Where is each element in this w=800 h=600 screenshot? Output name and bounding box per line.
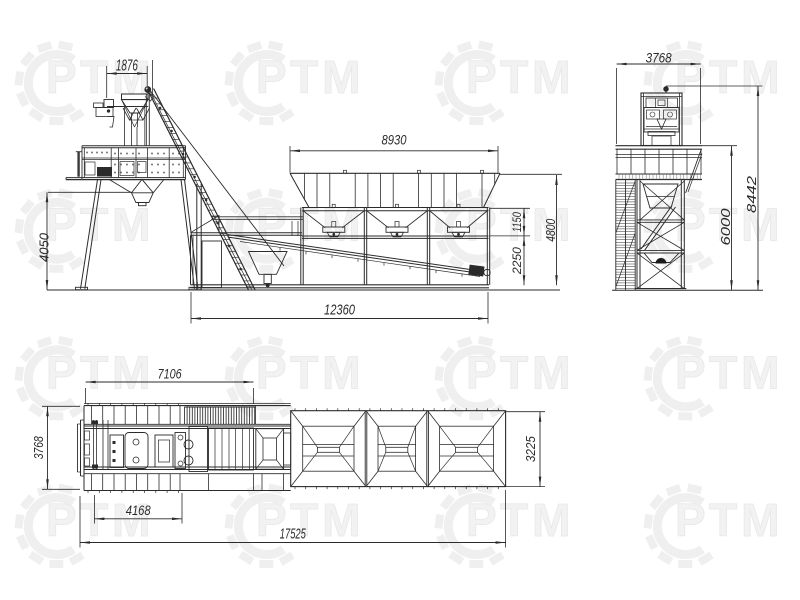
svg-text:8442: 8442: [744, 175, 759, 213]
svg-text:4168: 4168: [126, 502, 151, 518]
svg-text:2250: 2250: [510, 247, 524, 275]
svg-text:17525: 17525: [280, 526, 306, 543]
svg-text:РТМ: РТМ: [466, 494, 575, 546]
svg-text:7106: 7106: [158, 366, 182, 382]
svg-text:РТМ: РТМ: [46, 199, 155, 251]
svg-text:РТМ: РТМ: [675, 346, 784, 398]
svg-text:6000: 6000: [718, 208, 733, 246]
svg-text:РТМ: РТМ: [256, 494, 365, 546]
svg-text:РТМ: РТМ: [675, 51, 784, 103]
svg-text:РТМ: РТМ: [256, 51, 365, 103]
svg-text:РТМ: РТМ: [256, 346, 365, 398]
svg-text:РТМ: РТМ: [675, 494, 784, 546]
svg-text:8930: 8930: [382, 131, 407, 147]
svg-text:12360: 12360: [324, 302, 355, 319]
svg-text:1150: 1150: [510, 212, 524, 232]
svg-text:РТМ: РТМ: [466, 51, 575, 103]
svg-text:1876: 1876: [116, 58, 138, 75]
svg-text:3225: 3225: [523, 435, 538, 462]
svg-text:4800: 4800: [543, 218, 558, 242]
svg-text:3768: 3768: [646, 50, 672, 66]
svg-text:4050: 4050: [37, 232, 52, 262]
svg-text:РТМ: РТМ: [256, 199, 365, 251]
svg-text:РТМ: РТМ: [46, 346, 155, 398]
svg-text:РТМ: РТМ: [46, 51, 155, 103]
svg-text:РТМ: РТМ: [466, 346, 575, 398]
svg-text:3768: 3768: [31, 436, 46, 460]
